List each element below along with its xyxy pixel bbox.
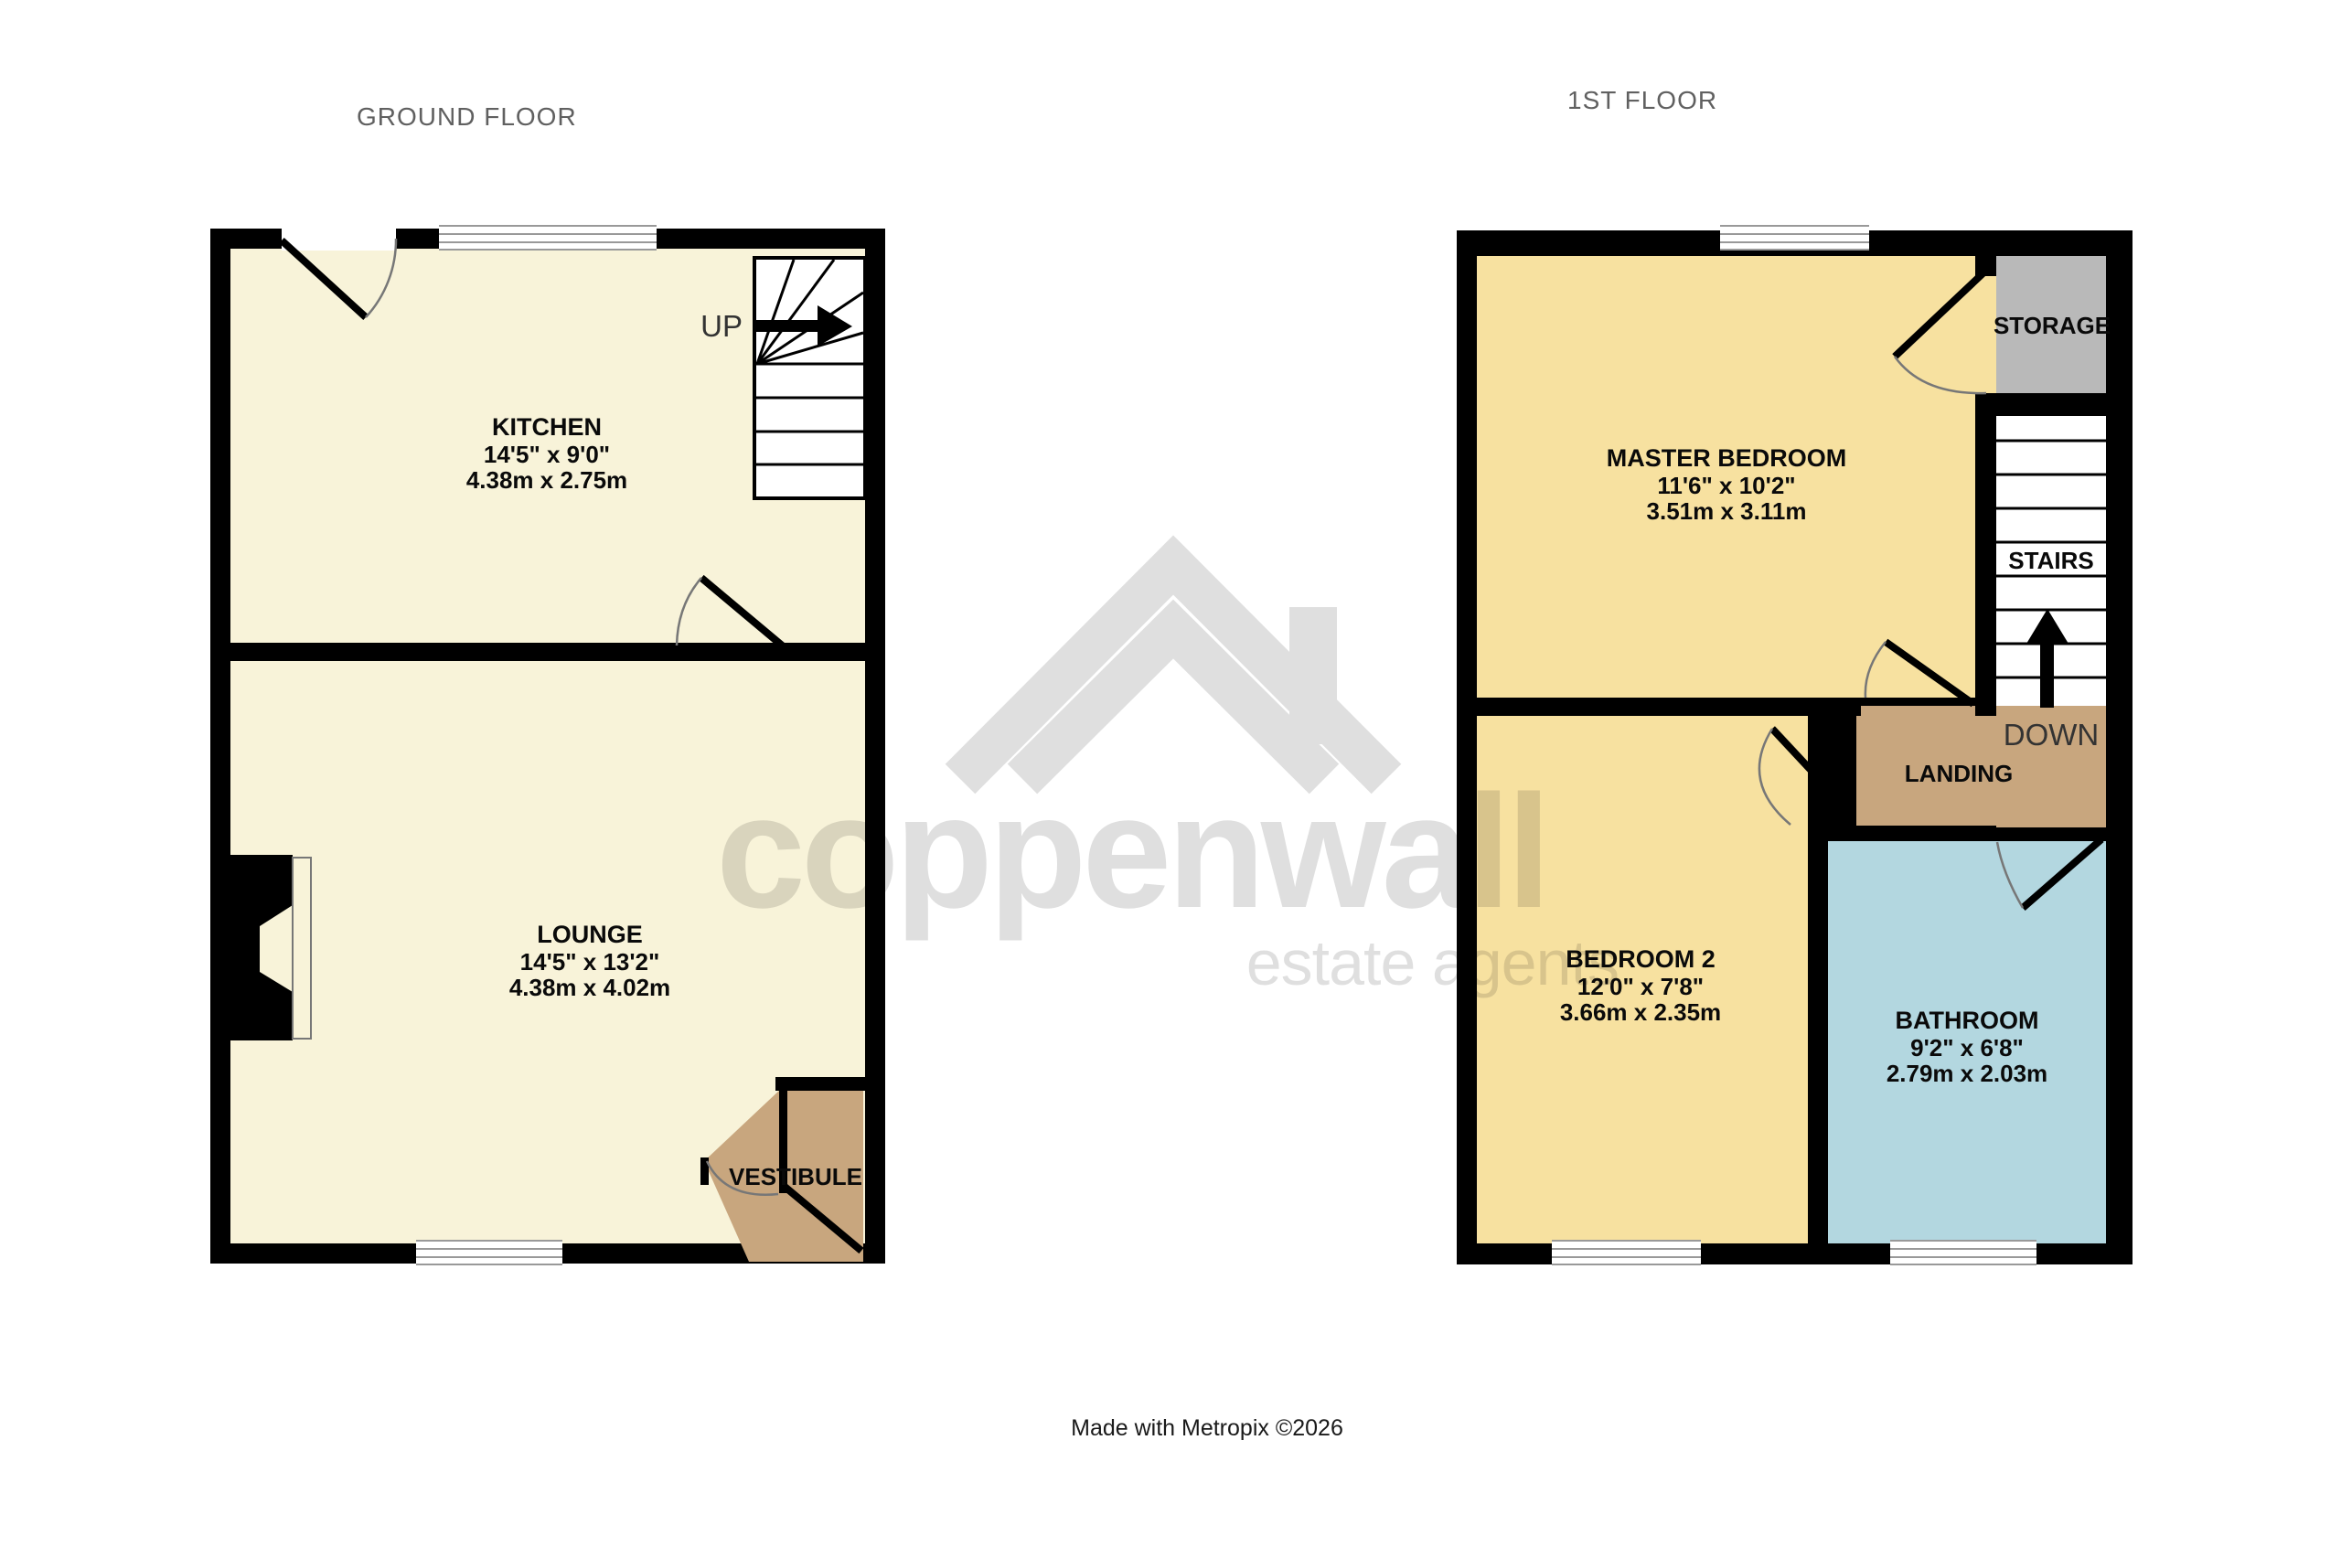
down-label: DOWN bbox=[2004, 718, 2099, 752]
first-top-window bbox=[1720, 225, 1869, 251]
svg-text:14'5" x 9'0": 14'5" x 9'0" bbox=[484, 441, 610, 468]
kitchen-lounge-wall-left bbox=[230, 643, 675, 661]
bedroom2-landing-wall-stub-bottom bbox=[1835, 814, 1856, 827]
storage-label: STORAGE bbox=[1994, 312, 2111, 339]
svg-text:LOUNGE: LOUNGE bbox=[537, 921, 643, 948]
svg-text:14'5" x 13'2": 14'5" x 13'2" bbox=[520, 948, 660, 976]
svg-text:2.79m x 2.03m: 2.79m x 2.03m bbox=[1887, 1060, 2047, 1087]
svg-text:KITCHEN: KITCHEN bbox=[492, 413, 602, 441]
stairs-left-wall bbox=[1975, 416, 1996, 716]
first-floor-plan: MASTER BEDROOM 11'6" x 10'2" 3.51m x 3.1… bbox=[1457, 225, 2133, 1265]
vestibule-label: VESTIBULE bbox=[729, 1163, 862, 1190]
footer-credit: Made with Metropix ©2026 bbox=[933, 1415, 1481, 1442]
svg-text:12'0" x 7'8": 12'0" x 7'8" bbox=[1577, 973, 1704, 1000]
bathroom-bottom-window bbox=[1890, 1240, 2036, 1265]
ground-front-door-top-opening bbox=[282, 227, 396, 251]
svg-text:BEDROOM 2: BEDROOM 2 bbox=[1566, 945, 1716, 973]
svg-text:9'2" x 6'8": 9'2" x 6'8" bbox=[1910, 1034, 2024, 1061]
hearth-outline bbox=[293, 858, 311, 1039]
svg-text:4.38m x 4.02m: 4.38m x 4.02m bbox=[509, 974, 670, 1001]
ground-stairs bbox=[754, 258, 865, 498]
landing-label: LANDING bbox=[1905, 760, 2013, 787]
svg-text:3.66m x 2.35m: 3.66m x 2.35m bbox=[1560, 998, 1721, 1026]
svg-text:MASTER BEDROOM: MASTER BEDROOM bbox=[1607, 444, 1847, 472]
floor-plan-drawing: UP KITCHEN 14'5" x 9'0" 4.38m x 2.75m LO… bbox=[0, 0, 2341, 1568]
kitchen-lounge-wall-right bbox=[788, 643, 865, 661]
svg-text:BATHROOM: BATHROOM bbox=[1896, 1007, 2039, 1034]
svg-text:4.38m x 2.75m: 4.38m x 2.75m bbox=[466, 466, 627, 494]
stairs-label: STAIRS bbox=[2008, 547, 2093, 574]
landing-bathroom-wall bbox=[1808, 826, 1996, 841]
master-bottom-wall-left bbox=[1477, 698, 1861, 716]
bedroom2-landing-wall-stub-top bbox=[1835, 716, 1856, 731]
floorplan-page: GROUND FLOOR 1ST FLOOR bbox=[0, 0, 2341, 1568]
ground-bottom-window bbox=[416, 1240, 562, 1265]
vestibule-wall-top bbox=[775, 1077, 865, 1091]
bedroom2-bathroom-wall bbox=[1808, 841, 1828, 1243]
bedroom2-bottom-window bbox=[1552, 1240, 1701, 1265]
svg-text:11'6" x 10'2": 11'6" x 10'2" bbox=[1657, 472, 1795, 499]
ground-floor-plan: UP KITCHEN 14'5" x 9'0" 4.38m x 2.75m LO… bbox=[210, 225, 885, 1265]
bathroom-label: BATHROOM 9'2" x 6'8" 2.79m x 2.03m bbox=[1887, 1007, 2047, 1087]
svg-text:3.51m x 3.11m: 3.51m x 3.11m bbox=[1647, 497, 1807, 525]
ground-top-window bbox=[439, 225, 657, 251]
storage-bottom-wall bbox=[1975, 393, 2106, 416]
bedroom2-label: BEDROOM 2 12'0" x 7'8" 3.66m x 2.35m bbox=[1560, 945, 1721, 1026]
up-label: UP bbox=[700, 309, 743, 343]
